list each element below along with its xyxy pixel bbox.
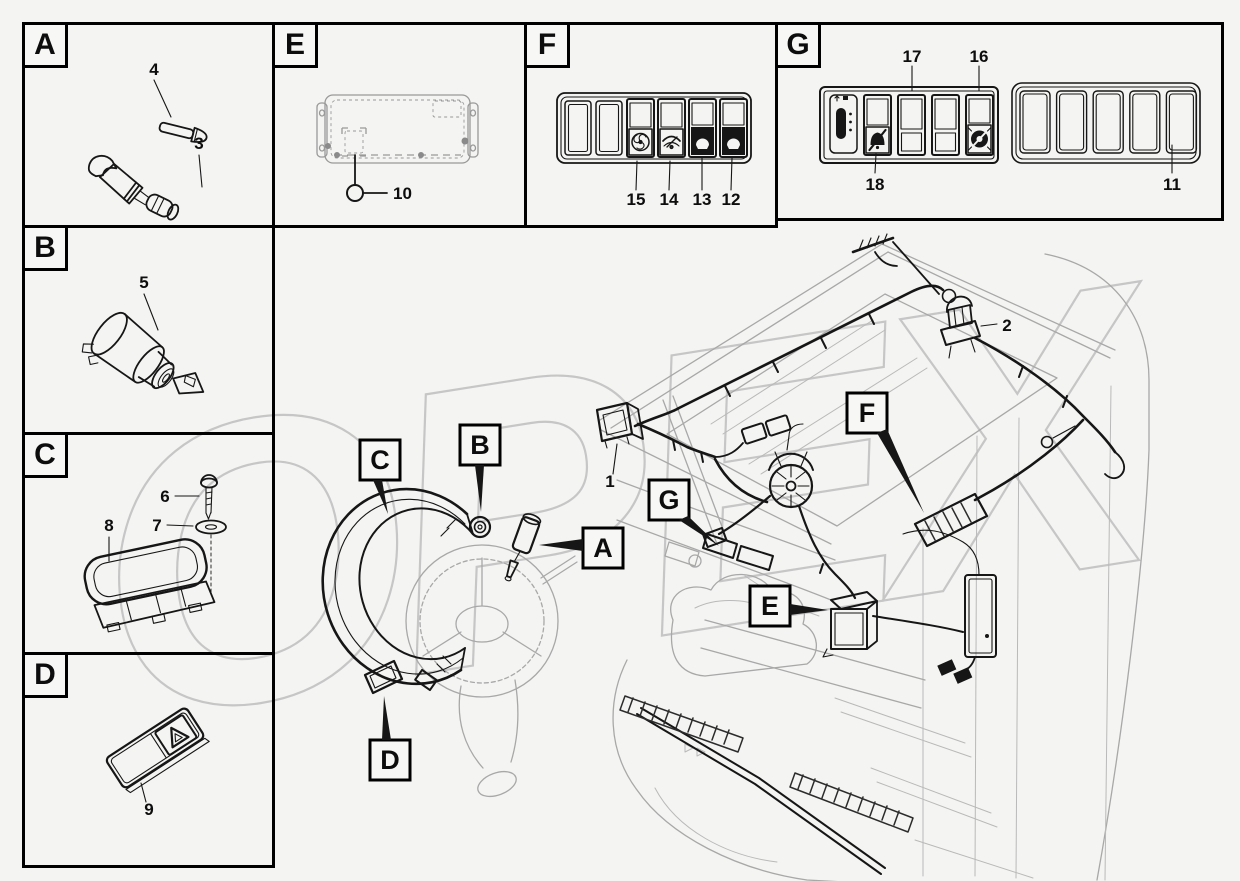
detail-box-d-label: D [22, 652, 68, 698]
beacon-off-icon [969, 128, 991, 150]
part-number-18: 18 [866, 175, 885, 194]
wiper-icon [663, 137, 680, 149]
part-number-1: 1 [605, 472, 614, 491]
detail-box-a-label: A [22, 22, 68, 68]
hazard-triangle-icon [163, 723, 188, 748]
callout-letter-e: E [761, 591, 779, 621]
detail-box-f: F [524, 22, 778, 228]
alarm-off-switch [864, 95, 891, 155]
detail-box-e-label: E [272, 22, 318, 68]
dome-lamp-drawing [81, 536, 216, 636]
detail-box-c-label: C [22, 432, 68, 478]
part-number-5: 5 [139, 273, 148, 292]
detail-box-b: B 5 [22, 225, 275, 435]
plug-connector-drawing [82, 151, 186, 224]
callout-letter-d: D [380, 745, 400, 775]
floor-hatched-strip [620, 696, 913, 832]
alarm-off-icon [870, 130, 886, 150]
ignition-switch-drawing [76, 305, 211, 429]
rear-work-lamp-switch [720, 99, 747, 157]
callout-arrow-e [790, 604, 828, 615]
horn-plug [501, 512, 542, 584]
rotating-beacon [941, 297, 980, 358]
part-number-15: 15 [627, 190, 646, 209]
washer-drawing [196, 521, 226, 534]
screw-drawing [201, 475, 217, 519]
relay-box [823, 592, 877, 657]
steering-column-cover [323, 489, 473, 690]
callout-arrow-a [539, 539, 583, 551]
callout-letter-c: C [370, 445, 390, 475]
detail-box-g-art: 17 16 18 11 [778, 25, 1227, 224]
detail-box-f-label: F [524, 22, 570, 68]
part-number-17: 17 [903, 47, 922, 66]
lever-icon [835, 96, 852, 139]
detail-box-d: D 9 [22, 652, 275, 868]
defroster-fan [769, 424, 813, 507]
side-control-box [903, 530, 996, 684]
detail-box-e: E 10 [272, 22, 527, 228]
front-work-lamp-switch [689, 99, 716, 157]
callout-arrow-b [475, 465, 484, 512]
detail-box-g-label: G [775, 22, 821, 68]
part-number-13: 13 [693, 190, 712, 209]
callout-letter-g: G [658, 485, 679, 515]
callout-arrow-f [877, 429, 924, 513]
callout-arrow-d [382, 696, 391, 740]
part-number-12: 12 [722, 190, 741, 209]
fan-icon [632, 134, 649, 151]
beacon-switch [966, 95, 993, 155]
parts-diagram-page: OPEX A 4 3 B [0, 0, 1240, 881]
part-number-10: 10 [393, 184, 412, 203]
switch-panel-f-drawing [557, 93, 751, 163]
part-number-9: 9 [144, 800, 153, 819]
wiper-switch [658, 99, 685, 157]
part-number-14: 14 [660, 190, 679, 209]
mounting-plate-drawing [317, 95, 478, 163]
fan-switch [627, 99, 654, 157]
callout-letter-b: B [470, 430, 490, 460]
part-number-7: 7 [152, 516, 161, 535]
part-number-6: 6 [160, 487, 169, 506]
callout-boxes: C B A D E F G [360, 393, 924, 780]
callout-arrow-c [373, 480, 388, 514]
part-number-16: 16 [970, 47, 989, 66]
part-number-4: 4 [149, 60, 159, 79]
part-number-8: 8 [104, 516, 113, 535]
part-number-2: 2 [1002, 316, 1011, 335]
detail-box-b-label: B [22, 225, 68, 271]
callout-letter-a: A [593, 533, 613, 563]
detail-box-a: A 4 3 [22, 22, 275, 228]
ignition-ring [470, 517, 490, 537]
callout-10 [347, 155, 387, 201]
detail-box-c: C 6 7 8 [22, 432, 275, 655]
cab-illustration: C B A D E F G 1 2 [275, 228, 1240, 881]
part-number-11: 11 [1163, 175, 1181, 194]
part-number-3: 3 [194, 134, 203, 153]
callout-letter-f: F [859, 398, 876, 428]
lever-module [830, 95, 857, 153]
detail-box-g: G [775, 22, 1224, 221]
switch-panel-g-left [820, 87, 998, 163]
hazard-switch-drawing [105, 706, 209, 794]
